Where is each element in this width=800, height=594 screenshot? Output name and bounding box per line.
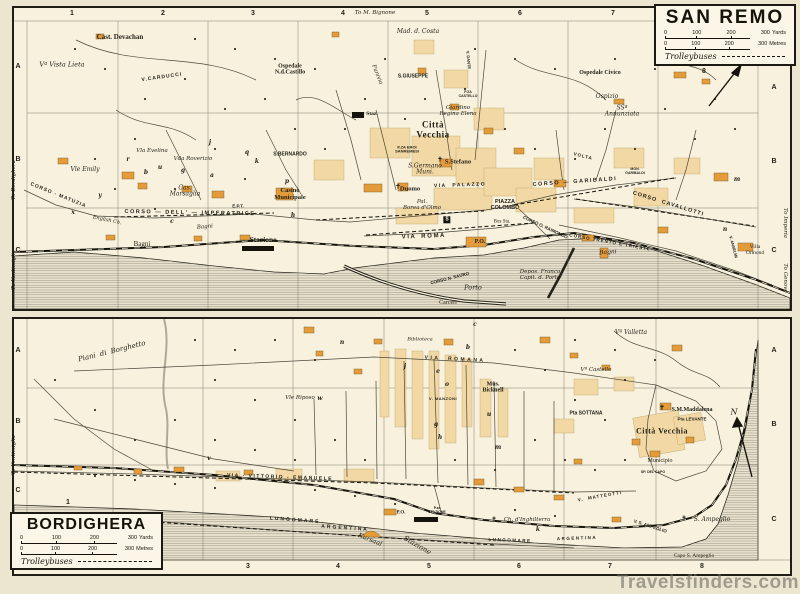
- map-label: E.P.T.: [232, 205, 243, 210]
- map-label: V. DANTE: [465, 51, 471, 70]
- map-label: Vle Emily: [70, 167, 99, 173]
- edge-direction-label: To Imperia: [781, 208, 787, 238]
- map-label: e: [436, 369, 440, 375]
- map-label: Stazione: [402, 535, 432, 557]
- map-label: k: [255, 159, 259, 165]
- scale-tick: 100: [52, 535, 61, 544]
- map-label: n: [723, 227, 727, 233]
- map-label: S.M.Maddalena: [671, 407, 712, 413]
- map-label: Stazione: [249, 236, 276, 244]
- map-label: Ospedale Civico: [579, 70, 621, 76]
- map-label: Vla Evelina: [136, 149, 167, 155]
- map-label: Vª Castello: [581, 368, 612, 374]
- map-label: V. S. AMPEGLIO: [633, 519, 667, 534]
- map-label: P.O.: [397, 510, 406, 515]
- map-label: P.ZA EROI SANREMESI: [395, 146, 419, 155]
- map-label: ✝: [491, 517, 496, 523]
- scale-tick: 200: [725, 41, 734, 50]
- map-label: V I A R O M A: [402, 233, 445, 241]
- map-label: PIAZZA COLOMBO: [491, 200, 520, 212]
- map-label: Giardino Regina Elena: [439, 106, 476, 118]
- map-label: Vda Roverizio: [174, 157, 213, 163]
- map-label: v: [207, 456, 211, 462]
- map-label: P.ZA CASTELLO: [459, 91, 478, 99]
- edge-direction-label: To Bordighera: [12, 160, 18, 200]
- map-label: S.Germano Muni.: [408, 164, 442, 177]
- grid-letter: A: [771, 347, 776, 355]
- map-label: LUNGOMARE: [269, 517, 320, 526]
- map-label: V.CARDUCCI: [141, 72, 182, 83]
- map-label: u: [487, 412, 491, 418]
- map-label: English Ch.: [92, 215, 122, 226]
- map-label: ARGENTINA: [557, 536, 597, 542]
- grid-number: 3: [246, 563, 250, 571]
- watermark: Travelsfinders.com: [617, 572, 799, 594]
- map-label: x: [71, 210, 75, 216]
- map-label: Vª Vista Lieta: [39, 61, 84, 68]
- map-label: Duomo: [400, 185, 420, 192]
- map-label: SSª Annunziata: [605, 106, 639, 119]
- grid-number: 6: [518, 10, 522, 18]
- map-label: Città Vecchia: [636, 428, 688, 437]
- grid-number: 1: [66, 499, 70, 507]
- map-label: CORSO O. RAIMONDO: [522, 215, 568, 240]
- map-label: Porto: [464, 284, 482, 291]
- map-label: Pta SOTTANA: [570, 411, 603, 416]
- map-label: V. ANSELMI: [728, 236, 738, 259]
- map-label: Funivia: [369, 64, 382, 86]
- grid-number: 8: [702, 68, 706, 76]
- grid-number: 7: [611, 10, 615, 18]
- map-label: S.Stefano: [445, 158, 471, 165]
- map-label: S.BERNARDO: [273, 152, 307, 157]
- map-label: m: [734, 177, 740, 183]
- map-label: N: [731, 409, 738, 418]
- map-label: CORSO — GARIBALDI: [533, 177, 618, 189]
- map-label: y: [98, 193, 102, 199]
- grid-letter: C: [15, 487, 20, 495]
- map-label: b: [466, 345, 470, 351]
- map-label: Bagni: [197, 224, 214, 231]
- map-label: m: [495, 445, 501, 451]
- map-label: Ospizio: [596, 94, 618, 100]
- grid-letter: B: [15, 418, 20, 426]
- map-label: SP. DEL CAPO: [641, 471, 665, 475]
- sanremo-scale-yards: 0 100 200 300Yards: [664, 30, 786, 39]
- map-label: r: [126, 157, 129, 163]
- edge-direction-label: To M. Bignone: [355, 11, 395, 17]
- map-label: Villa Ormond: [746, 245, 764, 257]
- map-label: VIA PALAZZO: [434, 182, 486, 189]
- map-label: S. Ampeglio: [694, 517, 730, 523]
- scale-tick: 0: [664, 30, 667, 39]
- map-label: Vª Valletta: [615, 330, 647, 336]
- scale-tick: 100: [691, 41, 700, 50]
- scale-unit: 300Yards: [761, 30, 786, 36]
- map-label: Cas. Marsaglia: [170, 186, 201, 199]
- grid-number: 8: [700, 563, 704, 571]
- map-label: VOLTA: [573, 152, 593, 161]
- map-label: k: [536, 527, 540, 533]
- map-label: Municipio: [648, 458, 673, 464]
- grid-number: 4: [336, 563, 340, 571]
- map-label: ✝: [681, 516, 686, 522]
- map-label: Casinò Municipale: [274, 187, 305, 201]
- edge-direction-label: To Genova: [781, 263, 787, 292]
- scale-unit: 300Yards: [128, 535, 153, 541]
- scale-tick: 200: [88, 546, 97, 555]
- map-label: Bagni: [134, 241, 151, 249]
- map-label: CORSO CAVALLOTTI: [632, 191, 705, 218]
- map-label: Ospedale N.d.Castillo: [275, 64, 305, 77]
- map-label: Pta LEVANTE: [678, 418, 707, 423]
- map-label: q: [245, 150, 249, 156]
- dashed-line: [78, 561, 152, 562]
- map-label: LUNGOMARE: [488, 538, 531, 544]
- map-label: Bus Sta.: [494, 219, 511, 224]
- map-label: o: [445, 382, 449, 388]
- map-label: b: [144, 170, 148, 176]
- map-label: a: [210, 173, 214, 179]
- grid-number: 1: [70, 10, 74, 18]
- scale-tick: 200: [90, 535, 99, 544]
- map-label: Depos. Franco Capit. d. Porto: [520, 270, 560, 282]
- sanremo-legend-box: SAN REMO 0 100 200 300Yards 0 100 200 30…: [654, 4, 796, 66]
- map-label: Città Vecchia: [416, 120, 449, 139]
- map-label: Capo S. Ampeglio: [674, 554, 715, 560]
- grid-number: 5: [425, 10, 429, 18]
- map-label: Mus. Bicknell: [482, 382, 503, 395]
- grid-letter: A: [771, 84, 776, 92]
- map-label: Piani di Borghetto: [78, 340, 147, 364]
- map-label: ✝: [437, 156, 442, 163]
- map-label: S: [443, 216, 450, 223]
- map-label: Vle Riposo: [285, 396, 315, 402]
- map-label: Kursaal: [357, 532, 383, 548]
- grid-letter: B: [771, 421, 776, 429]
- scale-unit: 300Metres: [758, 41, 786, 47]
- map-label: V. MATTEOTTI: [578, 491, 623, 504]
- map-label: c: [473, 322, 477, 328]
- grid-letter: B: [771, 158, 776, 166]
- bordighera-scale-metres: 0 100 200 300Metres: [20, 546, 153, 555]
- map-label: g: [181, 168, 185, 174]
- edge-direction-label: To Ventimiglia: [12, 250, 18, 290]
- map-label: Staz.: [366, 112, 377, 118]
- bordighera-legend-box: BORDIGHERA 0 100 200 300Yards 0 100 200 …: [10, 512, 163, 570]
- map-label: VIA - VITTORIO - EMANUELE: [227, 473, 333, 482]
- scale-tick: 0: [20, 546, 23, 555]
- grid-number: 6: [517, 563, 521, 571]
- map-label: Carceri: [439, 300, 457, 306]
- grid-number: 5: [427, 563, 431, 571]
- map-label: Bagni: [599, 249, 617, 257]
- map-label: ✝: [659, 404, 664, 411]
- map-label: c: [170, 219, 174, 225]
- map-label: g: [434, 422, 438, 428]
- map-label: Biblioteca: [407, 337, 432, 342]
- map-label: CORSO — DELL' — IMPERATRICE: [124, 210, 255, 218]
- map-label: S.GIUSEPPE: [398, 74, 428, 79]
- map-label: h: [291, 213, 295, 219]
- map-label: Cast. Devachan: [97, 34, 144, 42]
- scale-tick: 100: [51, 546, 60, 555]
- bordighera-title: BORDIGHERA: [12, 516, 161, 534]
- grid-letter: C: [771, 247, 776, 255]
- map-label: w: [317, 396, 322, 402]
- scale-tick: 100: [692, 30, 701, 39]
- map-label: P.za STAZIONE: [428, 507, 445, 515]
- scale-unit: 300Metres: [125, 546, 153, 552]
- sanremo-title: SAN REMO: [656, 7, 794, 29]
- map-label: MON. GARIBALDI: [625, 168, 644, 176]
- edge-direction-label: To Ventimiglia: [12, 435, 18, 475]
- grid-number: 2: [161, 10, 165, 18]
- map-label: VIA ROMANA: [424, 356, 485, 365]
- map-label: h: [438, 435, 442, 441]
- sanremo-scale-metres: 0 100 200 300Metres: [664, 41, 786, 50]
- map-label: V. MANZONI: [429, 397, 457, 401]
- scale-tick: 0: [20, 535, 23, 544]
- map-label: j: [209, 140, 211, 146]
- grid-letter: A: [15, 63, 20, 71]
- grid-number: 7: [608, 563, 612, 571]
- map-label: Ch. d'Inghilterra: [504, 518, 551, 524]
- sanremo-trolleybus-legend: Trolleybuses: [665, 52, 785, 61]
- map-label: Pal. Borea d'Olmo: [403, 200, 441, 212]
- map-label: P.O.: [475, 239, 486, 245]
- grid-number: 3: [251, 10, 255, 18]
- map-label: j: [404, 364, 406, 370]
- grid-letter: A: [15, 347, 20, 355]
- scale-tick: 0: [664, 41, 667, 50]
- map-label: u: [158, 165, 162, 171]
- scale-tick: 200: [727, 30, 736, 39]
- bordighera-trolleybus-legend: Trolleybuses: [21, 557, 152, 566]
- map-label: Mad. d. Costa: [397, 29, 439, 35]
- grid-letter: C: [771, 516, 776, 524]
- bordighera-scale-yards: 0 100 200 300Yards: [20, 535, 153, 544]
- dashed-line: [722, 56, 785, 57]
- map-label: p: [285, 179, 289, 185]
- grid-number: 4: [341, 10, 345, 18]
- map-label: n: [340, 340, 344, 346]
- map-label: CORSO - MATUZIA: [29, 182, 87, 209]
